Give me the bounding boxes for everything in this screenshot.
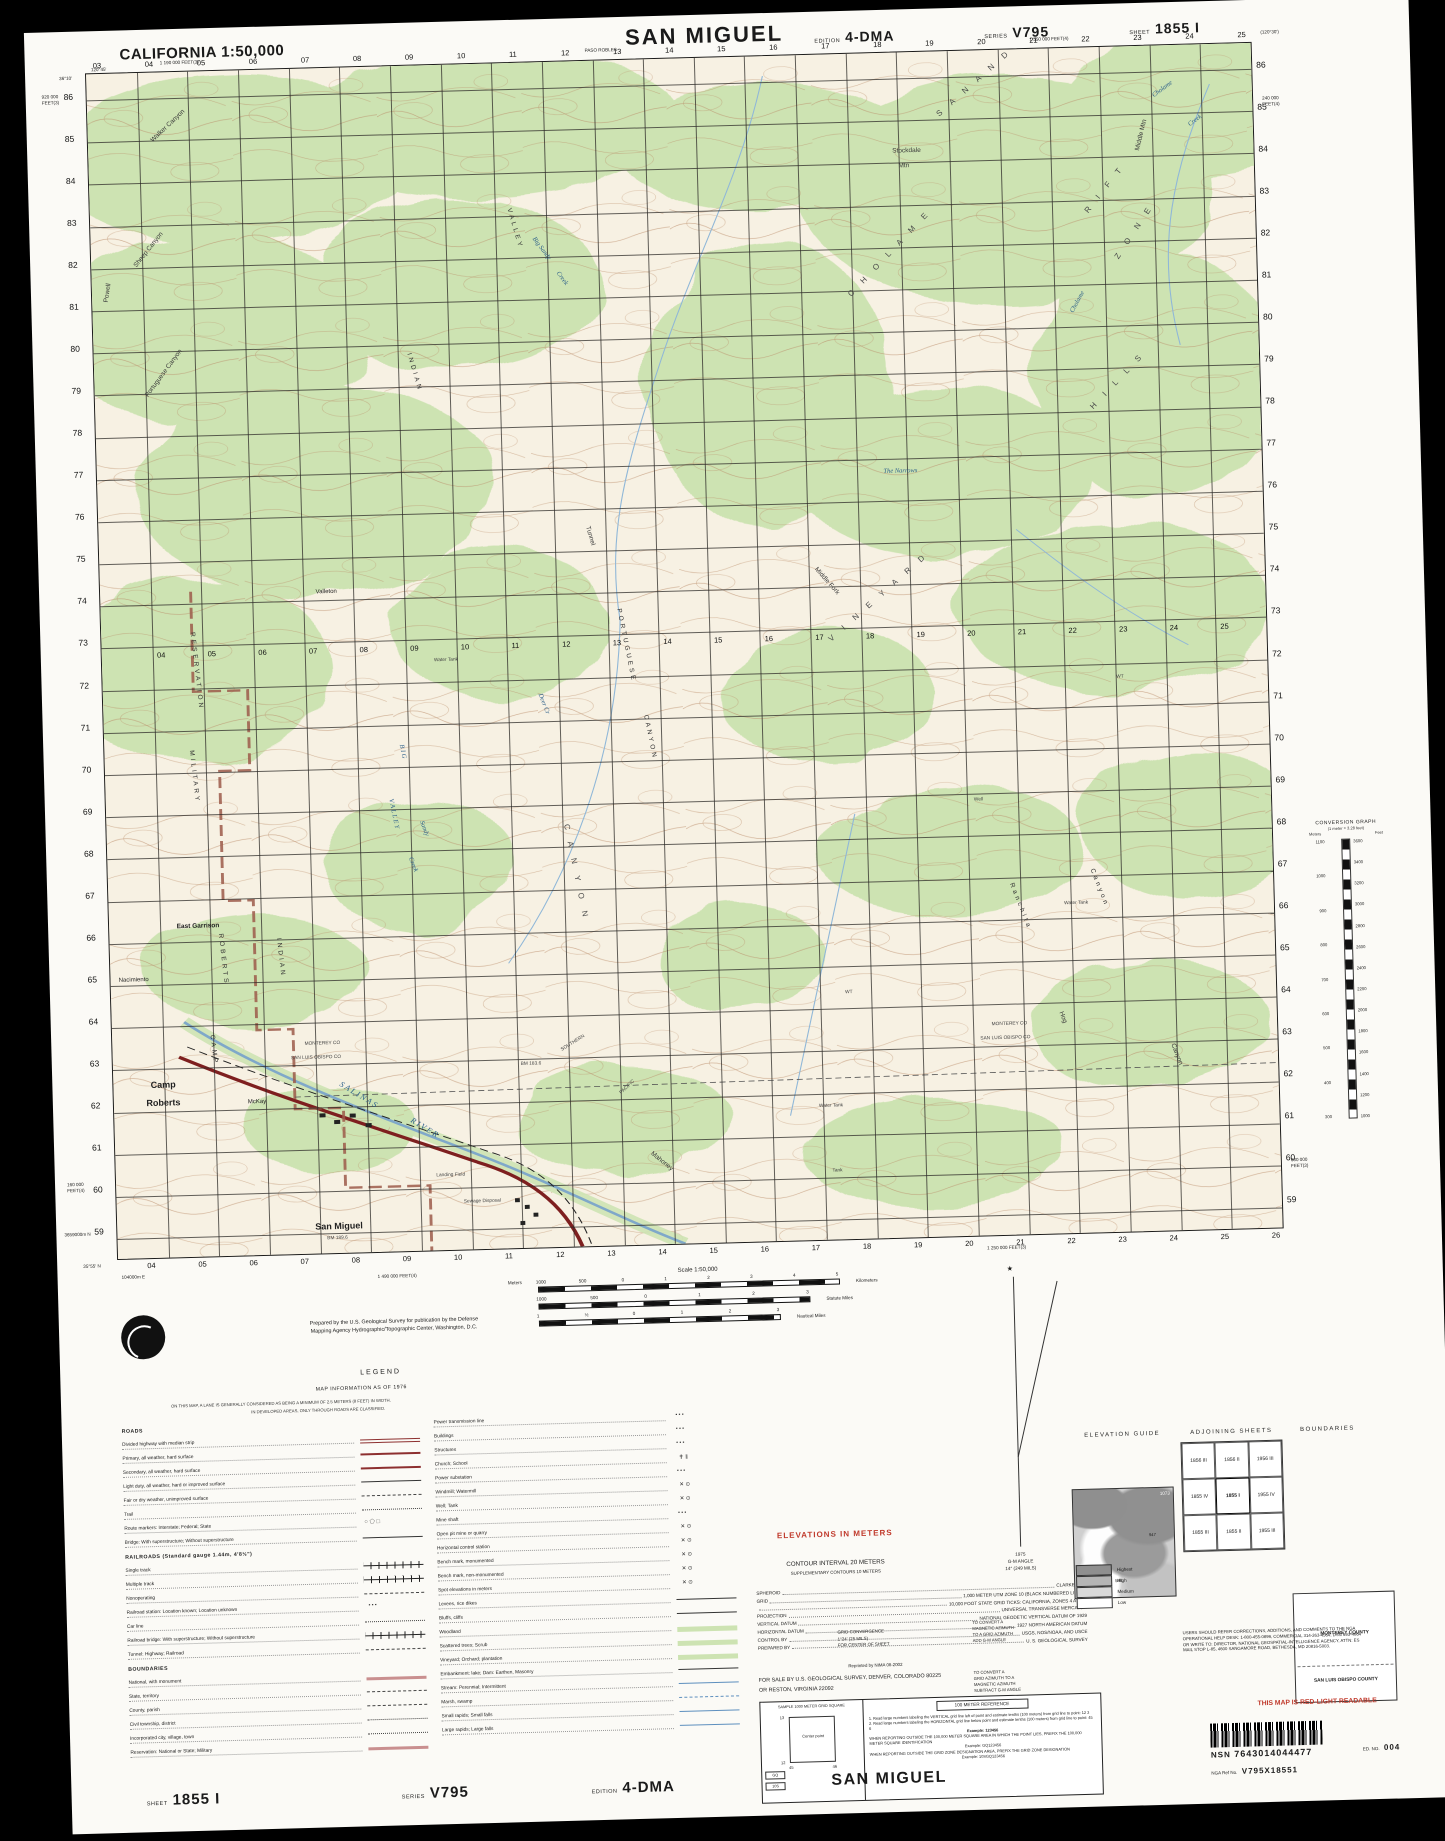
conversion-feet-tick: 1000 [1361, 1113, 1370, 1118]
top-easting-number: 21 [1029, 36, 1038, 45]
red-light-readable-note: THIS MAP IS RED-LIGHT READABLE [1257, 1697, 1376, 1707]
right-northing-number: 69 [1275, 774, 1285, 784]
left-northing-number: 85 [65, 134, 75, 144]
reprinted-note: Reprinted by NIMA 08-2002 [848, 1662, 902, 1668]
map-sheet-paper: CALIFORNIA 1:50,000 SAN MIGUEL EDITION 4… [24, 0, 1445, 1834]
legend-item-symbol [676, 1650, 740, 1659]
left-northing-number: 61 [92, 1142, 102, 1152]
left-northing-number: 71 [81, 722, 91, 732]
conversion-meters-tick: 400 [1324, 1080, 1331, 1085]
legend-item-label: Reservation: National or State; Military [130, 1744, 362, 1757]
map-label: San Miguel [315, 1220, 363, 1231]
bottom-easting-number: 21 [1016, 1237, 1025, 1246]
legend-item-symbol [359, 1476, 423, 1485]
legend-item-symbol [359, 1490, 423, 1499]
map-label: Roberts [146, 1097, 180, 1108]
elevation-guide-legend-row: Low [1077, 1597, 1135, 1610]
conversion-feet-tick: 2800 [1355, 923, 1364, 928]
legend-item-symbol [360, 1518, 424, 1527]
top-easting-number: 24 [1185, 31, 1194, 40]
adjoining-sheet-cell: 1855 IV [1182, 1478, 1216, 1515]
adjoining-sheet-cell: 1855 I [1216, 1477, 1250, 1514]
interior-easting-number: 24 [1170, 623, 1179, 632]
series-label: SERIES [984, 33, 1007, 40]
top-easting-number: 12 [561, 48, 570, 57]
left-northing-number: 63 [90, 1058, 100, 1068]
map-label: WT [1116, 675, 1124, 680]
scale-unit-label: Kilometers [856, 1277, 878, 1283]
ne-lon-label: (120°30') [1260, 29, 1279, 35]
top-easting-number: 03 [93, 61, 102, 70]
conversion-feet-tick: 1800 [1358, 1028, 1367, 1033]
datum-value: U. S. GEOLOGICAL SURVEY [1026, 1635, 1088, 1644]
interior-easting-number: 18 [866, 632, 875, 641]
scale-tick-label: 3 [777, 1307, 780, 1312]
bottom-easting-number: 09 [403, 1254, 412, 1263]
right-northing-number: 75 [1269, 522, 1279, 532]
conversion-meters-tick: 500 [1323, 1045, 1330, 1050]
left-northing-number: 59 [94, 1226, 104, 1236]
left-northing-number: 79 [71, 386, 81, 396]
left-northing-number: 84 [66, 176, 76, 186]
top-left-feet-label: 1 190 000 FEET(3) [160, 59, 199, 66]
barcode [1210, 1721, 1323, 1748]
map-label: Water Tank [434, 657, 458, 663]
right-northing-number: 70 [1274, 732, 1284, 742]
right-northing-number: 64 [1281, 984, 1291, 994]
hundred-meter-reference-title: 100 METER REFERENCE [936, 1699, 1028, 1711]
interior-easting-number: 21 [1018, 627, 1027, 636]
top-easting-number: 19 [925, 38, 934, 47]
interior-easting-number: 19 [916, 630, 925, 639]
interior-easting-number: 10 [461, 643, 470, 652]
top-easting-number: 22 [1081, 34, 1090, 43]
legend-item-symbol [365, 1700, 429, 1709]
conversion-feet-tick: 1600 [1359, 1049, 1368, 1054]
interior-easting-number: 25 [1220, 622, 1229, 631]
left-northing-number: 86 [63, 92, 73, 102]
map-label: Sewage Disposal [464, 1199, 501, 1205]
right-northing-number: 80 [1263, 312, 1273, 322]
map-label: The Narrows [883, 467, 917, 475]
right-northing-number: 66 [1279, 900, 1289, 910]
scale-tick-label: 500 [579, 1278, 587, 1283]
adjoining-sheet-cell: 1855 II [1217, 1513, 1251, 1550]
adjoining-sheets-grid: 1856 III1856 II1956 III1855 IV1855 I1955… [1180, 1440, 1285, 1553]
legend-item-symbol [672, 1524, 736, 1533]
legend-item-symbol [671, 1482, 735, 1491]
grid-zone-id: 10S [765, 1782, 785, 1791]
left-northing-number: 60 [93, 1184, 103, 1194]
sw-lat-label: 35°55' N [83, 1263, 101, 1269]
right-northing-number: 63 [1282, 1026, 1292, 1036]
adjoining-sheet-cell: 1956 III [1248, 1441, 1282, 1478]
legend-title: LEGEND [360, 1368, 401, 1376]
bottom-easting-number: 13 [607, 1249, 616, 1258]
bottom-easting-number: 08 [352, 1255, 361, 1264]
legend-item-symbol [677, 1678, 741, 1687]
north-star-icon: ★ [1007, 1265, 1013, 1273]
footer-edition: EDITION4-DMA [591, 1778, 675, 1797]
left-northing-number: 80 [70, 344, 80, 354]
right-northing-number: 73 [1271, 606, 1281, 616]
elevation-guide-legend-label: Highest [1117, 1567, 1133, 1572]
left-northing-number: 68 [84, 848, 94, 858]
legend-item-symbol [358, 1434, 422, 1443]
scale-tick-label: 1 [664, 1276, 667, 1281]
right-northing-number: 77 [1266, 438, 1276, 448]
right-northing-number: 61 [1284, 1110, 1294, 1120]
boundary-county-bottom: SAN LUIS OBISPO COUNTY [1296, 1677, 1396, 1685]
interior-easting-number: 13 [613, 638, 622, 647]
conversion-meters-tick: 300 [1325, 1114, 1332, 1119]
conversion-meters-tick: 600 [1322, 1011, 1329, 1016]
right-northing-number: 79 [1264, 354, 1274, 364]
top-easting-number: 08 [353, 54, 362, 63]
for-sale-line1: FOR SALE BY U.S. GEOLOGICAL SURVEY, DENV… [759, 1673, 942, 1684]
map-label: MONTEREY CO [992, 1021, 1028, 1027]
right-northing-number: 74 [1270, 564, 1280, 574]
left-bottom-feet-label: 160 000 FEET(4) [67, 1182, 85, 1194]
boundaries-panel-title: BOUNDARIES [1300, 1426, 1355, 1433]
legend-item-symbol [671, 1454, 735, 1463]
bottom-feet4-label: 1 490 000 FEET(4) [378, 1273, 417, 1280]
datum-block: SPHEROIDCLARKE 1866GRID1,000 METER UTM Z… [756, 1581, 1088, 1652]
legend-note-2: IN DEVELOPED AREAS, ONLY THROUGH ROADS A… [251, 1406, 385, 1415]
top-easting-number: 14 [665, 45, 674, 54]
legend-item-symbol [674, 1594, 738, 1603]
elevation-guide-legend: HighestHighMediumLow [1076, 1564, 1135, 1610]
right-northing-number: 85 [1257, 102, 1267, 112]
interior-easting-number: 08 [359, 645, 368, 654]
conversion-meters-tick: 900 [1319, 908, 1326, 913]
legend-item-symbol [361, 1532, 425, 1541]
conversion-meters-tick: 700 [1321, 977, 1328, 982]
bottom-easting-number: 23 [1118, 1235, 1127, 1244]
conversion-feet-tick: 3400 [1354, 859, 1363, 864]
left-northing-number: 70 [82, 764, 92, 774]
legend-item-symbol [366, 1728, 430, 1737]
right-northing-number: 86 [1256, 59, 1266, 69]
top-easting-number: 13 [613, 47, 622, 56]
right-northing-number: 67 [1278, 858, 1288, 868]
scale-tick-label: 3 [750, 1274, 753, 1279]
map-label: Camp [151, 1080, 176, 1091]
map-label: WT [845, 990, 853, 995]
edition-value: 4-DMA [845, 28, 895, 45]
conversion-feet-tick: 2200 [1357, 986, 1366, 991]
edition-number-line: ED. NO. 004 [1362, 1736, 1400, 1755]
bottom-easting-number: 19 [914, 1240, 923, 1249]
for-sale-line2: OR RESTON, VIRGINIA 22092 [759, 1686, 834, 1694]
bottom-easting-number: 07 [300, 1257, 309, 1266]
conversion-feet-tick: 3000 [1355, 902, 1364, 907]
square-id-gq: GQ [765, 1771, 785, 1780]
sample-grid-square: 13 12 45 46 Center point [789, 1716, 836, 1763]
top-easting-number: 18 [873, 40, 882, 49]
bottom-easting-number: 17 [812, 1243, 821, 1252]
legend-item-label: Large rapids; Large falls [442, 1722, 674, 1735]
legend-item-symbol [678, 1720, 742, 1729]
left-northing-number: 66 [86, 932, 96, 942]
legend-item-symbol [366, 1742, 430, 1751]
conversion-feet-tick: 3200 [1354, 880, 1363, 885]
legend-item-symbol [675, 1622, 739, 1631]
footer-series: SERIESV795 [401, 1784, 469, 1803]
top-easting-number: 10 [457, 51, 466, 60]
scale-tick-label: 5 [836, 1271, 839, 1276]
bottom-easting-number: 18 [863, 1242, 872, 1251]
bottom-easting-number: 16 [761, 1244, 770, 1253]
conversion-graph: CONVERSION GRAPH (1 meter = 3.28 feet) M… [1291, 818, 1409, 1120]
dma-seal-logo [121, 1315, 166, 1360]
legend-item-symbol [669, 1412, 733, 1421]
adjoining-sheet-cell: 1856 II [1215, 1441, 1249, 1478]
interior-easting-number: 04 [157, 651, 166, 660]
scale-unit-label: Statute Miles [826, 1295, 853, 1301]
scale-tick-label: 0 [633, 1311, 636, 1316]
interior-easting-number: 11 [511, 641, 519, 650]
legend-item-symbol [672, 1496, 736, 1505]
adjoining-sheet-cell: 1955 III [1250, 1513, 1284, 1550]
adjoining-sheet-cell: 1955 IV [1249, 1477, 1283, 1514]
top-easting-number: 11 [509, 50, 517, 59]
map-label: Mtn [898, 162, 909, 169]
scale-tick-label: 0 [644, 1294, 647, 1299]
legend-item-symbol [362, 1588, 426, 1597]
legend-item-symbol [363, 1616, 427, 1625]
elevations-in-meters-title: ELEVATIONS IN METERS [705, 1526, 965, 1542]
top-easting-number: 25 [1237, 30, 1246, 39]
bottom-easting-number: 11 [505, 1251, 513, 1260]
scale-left-unit: Meters [508, 1280, 522, 1285]
bottom-left-easting-label: 104000m E [122, 1274, 146, 1280]
map-label: Water Tank [819, 1103, 843, 1109]
left-northing-number: 64 [89, 1016, 99, 1026]
map-label: East Garrison [177, 922, 220, 930]
conversion-feet-tick: 2600 [1356, 944, 1365, 949]
right-northing-number: 84 [1258, 144, 1268, 154]
right-northing-number: 83 [1259, 186, 1269, 196]
map-label: Valleton [316, 589, 337, 596]
conversion-meters-tick: 1000 [1316, 874, 1325, 879]
legend-item-symbol [361, 1560, 425, 1569]
interior-easting-number: 20 [967, 629, 976, 638]
left-northing-number: 73 [78, 638, 88, 648]
top-easting-number: 16 [769, 43, 778, 52]
bottom-easting-number: 10 [454, 1253, 463, 1262]
map-body[interactable]: Walker CanyonSheep CanyonPowellPortugues… [85, 42, 1284, 1260]
legend-item-symbol [363, 1630, 427, 1639]
scale-tick-label: 1 [698, 1292, 701, 1297]
legend-item-symbol [676, 1664, 740, 1673]
right-northing-number: 71 [1273, 690, 1283, 700]
legend-item-symbol [673, 1552, 737, 1561]
left-northing-number: 62 [91, 1100, 101, 1110]
legend-item-symbol [365, 1686, 429, 1695]
conversion-feet-tick: 1200 [1360, 1092, 1369, 1097]
legend-item-symbol [677, 1692, 741, 1701]
map-label: BM 189.6 [327, 1236, 348, 1242]
legend-left-column: ROADSDivided highway with median stripPr… [122, 1417, 431, 1761]
sample-grid-square-title: SAMPLE 1000 METER GRID SQUARE [763, 1703, 859, 1710]
bottom-easting-number: 22 [1067, 1236, 1076, 1245]
scale-tick-label: 4 [793, 1273, 796, 1278]
left-northing-number: 76 [75, 512, 85, 522]
legend-item-symbol [671, 1468, 735, 1477]
interior-easting-number: 07 [309, 647, 318, 656]
scale-tick-label: 2 [752, 1291, 755, 1296]
footer-title: SAN MIGUEL [831, 1769, 947, 1790]
adjoining-sheets-title: ADJOINING SHEETS [1190, 1428, 1272, 1436]
bottom-easting-number: 04 [147, 1261, 156, 1270]
nw-lat-label: 36°10' [59, 76, 72, 82]
conversion-meters-tick: 800 [1320, 942, 1327, 947]
right-northing-number: 65 [1280, 942, 1290, 952]
left-northing-number: 78 [73, 428, 83, 438]
right-northing-number: 76 [1267, 480, 1277, 490]
left-northing-number: 72 [79, 680, 89, 690]
legend-item-symbol [672, 1510, 736, 1519]
elevation-guide-legend-label: Medium [1117, 1589, 1133, 1594]
left-northing-number: 65 [87, 974, 97, 984]
conversion-feet-tick: 1400 [1359, 1071, 1368, 1076]
legend-item-symbol [670, 1426, 734, 1435]
top-easting-number: 17 [821, 41, 830, 50]
nga-ref-line: NGA Ref No. V795X18551 [1211, 1759, 1298, 1779]
legend-item-symbol [362, 1602, 426, 1611]
bottom-easting-number: 05 [198, 1260, 207, 1269]
map-label: Water Tank [1064, 901, 1088, 907]
scale-tick-label: 1 [681, 1310, 684, 1315]
top-easting-number: 06 [249, 57, 258, 66]
legend-item-symbol [360, 1504, 424, 1513]
scale-tick-label: 500 [590, 1295, 598, 1300]
left-northing-number: 83 [67, 218, 77, 228]
map-label: MONTEREY CO [304, 1041, 340, 1047]
footer-sheet: SHEET1855 I [147, 1790, 221, 1809]
center-point-note: Center point [802, 1733, 824, 1739]
adjoining-sheet-cell: 1856 III [1181, 1442, 1215, 1479]
prepared-by-note: Prepared by the U.S. Geological Survey f… [179, 1312, 609, 1340]
legend-item-symbol [676, 1636, 740, 1645]
legend-item-symbol [364, 1644, 428, 1653]
bottom-easting-number: 20 [965, 1239, 974, 1248]
interior-easting-number: 15 [714, 636, 723, 645]
scale-unit-label: Nautical Miles [797, 1313, 826, 1319]
map-label: Tank [832, 1168, 842, 1173]
scale-tick-label: 3 [806, 1289, 809, 1294]
interior-easting-number: 22 [1068, 626, 1077, 635]
legend-info-date: MAP INFORMATION AS OF 1976 [316, 1384, 407, 1392]
top-easting-number: 04 [145, 60, 154, 69]
left-top-feet-label: 920 000 FEET(3) [42, 94, 60, 106]
left-northing-number: 77 [74, 470, 84, 480]
legend-item-symbol [364, 1672, 428, 1681]
left-northing-number: 75 [76, 554, 86, 564]
right-northing-number: 60 [1286, 1152, 1296, 1162]
right-northing-number: 59 [1287, 1194, 1297, 1204]
scale-tick-label: 0 [621, 1277, 624, 1282]
bottom-easting-number: 15 [709, 1246, 718, 1255]
interior-easting-number: 06 [258, 648, 267, 657]
map-label: Stockdale [892, 147, 921, 155]
bottom-easting-number: 06 [249, 1258, 258, 1267]
top-easting-number: 23 [1133, 33, 1142, 42]
bottom-easting-number: 24 [1169, 1233, 1178, 1242]
conversion-feet-tick: 2400 [1357, 965, 1366, 970]
right-northing-number: 72 [1272, 648, 1282, 658]
left-northing-number: 82 [68, 260, 78, 270]
conversion-feet-tick: 2000 [1358, 1007, 1367, 1012]
left-northing-number: 67 [85, 890, 95, 900]
left-northing-number: 81 [69, 302, 79, 312]
top-easting-number: 05 [197, 58, 206, 67]
legend-item-symbol [358, 1448, 422, 1457]
top-easting-number: 15 [717, 44, 726, 53]
datum-key: PREPARED BY [758, 1644, 791, 1653]
interior-easting-number: 12 [562, 640, 571, 649]
scale-tick-label: 2 [729, 1308, 732, 1313]
right-northing-number: 78 [1265, 396, 1275, 406]
map-label: BM 183.6 [521, 1061, 542, 1067]
interior-easting-number: 17 [815, 633, 824, 642]
elevation-guide-swatch [1077, 1597, 1113, 1609]
scale-tick-label: 2 [707, 1275, 710, 1280]
scale-tick-label: 1000 [536, 1296, 546, 1301]
legend-item-symbol [674, 1580, 738, 1589]
bottom-easting-number: 12 [556, 1250, 565, 1259]
scale-tick-label: 1000 [536, 1279, 546, 1284]
elevation-guide-legend-label: High [1117, 1578, 1127, 1583]
nsn-line: NSN 7643014044477 [1211, 1747, 1313, 1760]
adjoining-sheet-cell: 1855 III [1183, 1514, 1217, 1551]
right-northing-number: 81 [1262, 270, 1272, 280]
right-northing-number: 62 [1283, 1068, 1293, 1078]
legend-item-symbol [670, 1440, 734, 1449]
legend-item-symbol [362, 1574, 426, 1583]
legend-item-symbol [359, 1462, 423, 1471]
scanned-topo-map-page: { "header": { "state_scale": "CALIFORNIA… [0, 0, 1445, 1841]
legend-item-symbol [675, 1608, 739, 1617]
bottom-easting-number: 14 [658, 1247, 667, 1256]
map-label: McKay [248, 1098, 266, 1104]
sheet-title: SAN MIGUEL [625, 21, 784, 51]
top-easting-number: 07 [301, 55, 310, 64]
conversion-feet-tick: 3600 [1353, 838, 1362, 843]
interior-easting-number: 09 [410, 644, 419, 653]
left-bottom-northing-label: 3659000m N [64, 1232, 90, 1238]
bottom-easting-number: 26 [1272, 1231, 1281, 1240]
elevation-guide-legend-label: Low [1118, 1600, 1127, 1605]
left-northing-number: 69 [83, 806, 93, 816]
interior-easting-number: 16 [765, 634, 774, 643]
bottom-easting-number: 25 [1221, 1232, 1230, 1241]
interior-easting-number: 14 [663, 637, 672, 646]
right-northing-number: 82 [1261, 228, 1271, 238]
legend-item-symbol [677, 1706, 741, 1715]
map-label: Landing Field [436, 1173, 465, 1179]
right-northing-number: 68 [1277, 816, 1287, 826]
map-label: Well [974, 797, 983, 802]
map-label: Nacimiento [119, 977, 149, 984]
left-northing-number: 74 [77, 596, 87, 606]
interior-easting-number: 23 [1119, 625, 1128, 634]
top-easting-number: 20 [977, 37, 986, 46]
legend-right-column: Power transmission lineBuildingsStructur… [433, 1408, 742, 1738]
top-easting-number: 09 [405, 53, 414, 62]
gm-angle-value: 14° (249 MILS) [971, 1564, 1071, 1574]
